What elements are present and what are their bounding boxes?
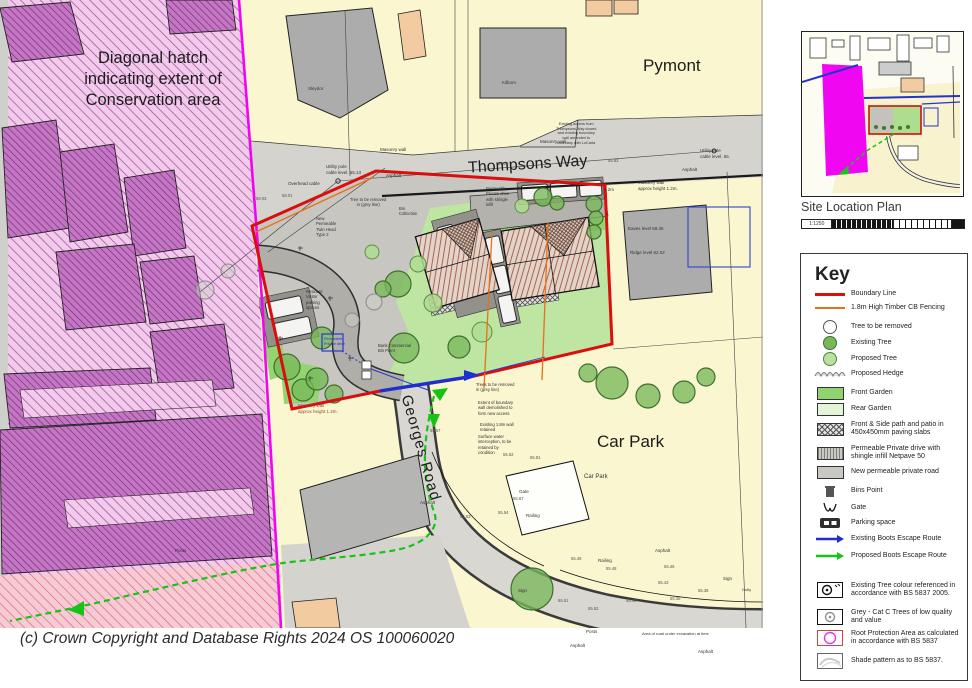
map-annotation: Posts <box>586 629 597 635</box>
parking-space-icon <box>809 517 851 529</box>
permeable-drive-swatch <box>809 447 851 460</box>
blue-arrow-icon <box>809 534 851 544</box>
map-annotation: Area of road under excavation at time <box>642 631 709 636</box>
scale-bar-segment <box>952 219 965 229</box>
key-title: Key <box>815 264 850 286</box>
scale-bar-segment <box>894 219 952 229</box>
tree-removed-icon <box>809 320 851 334</box>
scale-bar: 1:1250 <box>801 219 965 229</box>
green-arrow-icon <box>809 551 851 561</box>
shade-pattern-icon <box>809 653 851 669</box>
map-annotation: Asphalt <box>570 643 585 649</box>
key-panel: Key Boundary Line 1.8m High Timber CB Fe… <box>800 253 968 681</box>
key-item-shade-pattern: Shade pattern as to BS 5837. <box>809 648 963 674</box>
copyright-text: (c) Crown Copyright and Database Rights … <box>20 630 454 648</box>
tree-colour-ref-icon <box>809 582 851 598</box>
bins-icon <box>809 484 851 498</box>
key-item-tree-colour-ref: Existing Tree colour referenced in accor… <box>809 577 963 603</box>
key-item-timber-fencing: 1.8m High Timber CB Fencing <box>809 298 963 318</box>
site-plan-document: Diagonal hatch indicating extent of Cons… <box>0 0 972 688</box>
hedge-icon <box>809 369 851 379</box>
inset-title: Site Location Plan <box>801 200 902 214</box>
key-item-proposed-hedge: Proposed Hedge <box>809 364 963 384</box>
paving-swatch <box>809 423 851 436</box>
proposed-house-2 <box>501 217 599 300</box>
rear-garden-swatch <box>809 403 851 416</box>
grey-tree-icon <box>809 609 851 625</box>
map-drawing <box>0 0 763 628</box>
site-plan-map: Diagonal hatch indicating extent of Cons… <box>0 0 763 628</box>
front-garden-swatch <box>809 387 851 400</box>
key-swatch-timber-fencing <box>809 307 851 309</box>
scale-ratio: 1:1250 <box>801 219 832 229</box>
key-item-proposed-escape-route: Proposed Boots Escape Route <box>809 546 963 566</box>
root-protection-icon <box>809 630 851 646</box>
key-item-permeable-drive: Permeable Private drive with shingle inf… <box>809 443 963 463</box>
scale-bar-segment <box>832 219 894 229</box>
key-item-rear-garden: Rear Garden <box>809 399 963 419</box>
key-item-private-road: New permeable private road <box>809 462 963 482</box>
key-item-paving: Front & Side path and patio in 450x450mm… <box>809 419 963 439</box>
private-road-swatch <box>809 466 851 479</box>
existing-tree-icon <box>809 336 851 350</box>
inset-conservation-area <box>822 64 868 176</box>
key-swatch-boundary-line <box>809 293 851 296</box>
inset-map <box>801 31 964 197</box>
map-annotation: Asphalt <box>698 649 713 655</box>
